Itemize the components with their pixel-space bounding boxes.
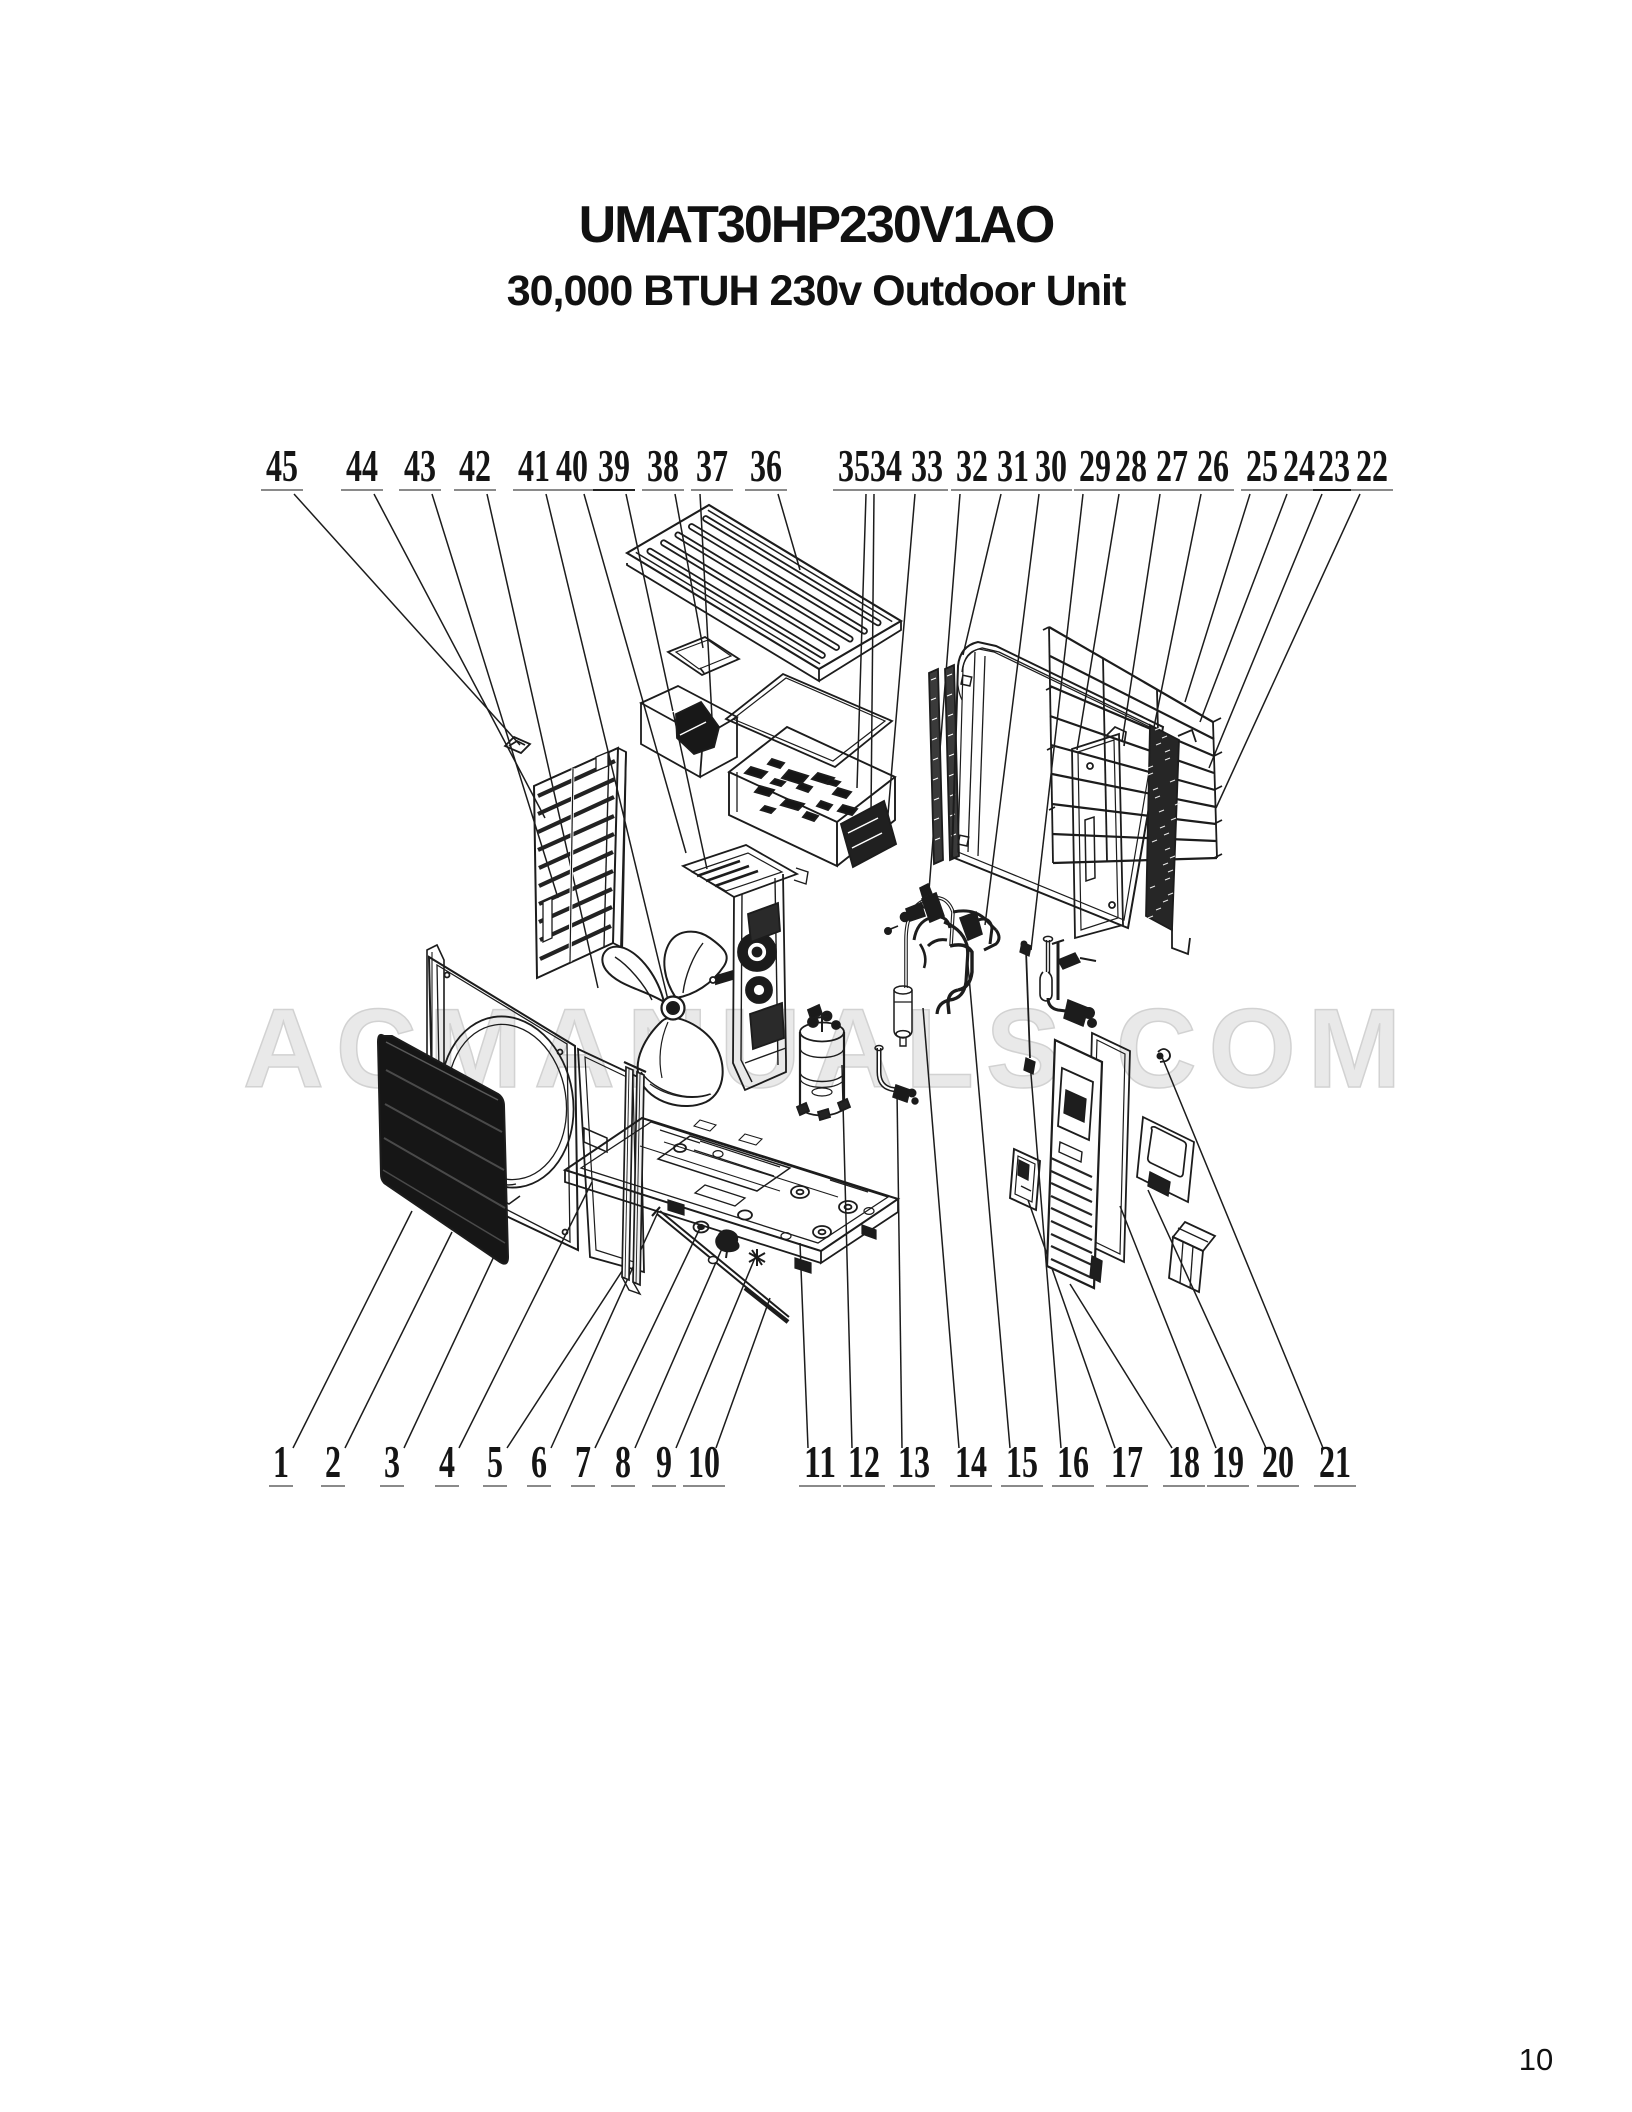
svg-text:41: 41 <box>518 440 550 491</box>
svg-text:28: 28 <box>1115 440 1147 491</box>
svg-text:21: 21 <box>1319 1436 1351 1487</box>
svg-text:33: 33 <box>911 440 943 491</box>
svg-text:32: 32 <box>956 440 988 491</box>
svg-text:23: 23 <box>1318 440 1350 491</box>
svg-text:8: 8 <box>615 1436 631 1487</box>
svg-text:43: 43 <box>404 440 436 491</box>
svg-text:6: 6 <box>531 1436 547 1487</box>
svg-text:1: 1 <box>273 1436 289 1487</box>
svg-text:40: 40 <box>556 440 588 491</box>
svg-text:19: 19 <box>1212 1436 1244 1487</box>
svg-text:4: 4 <box>439 1436 455 1487</box>
svg-text:42: 42 <box>459 440 491 491</box>
svg-text:37: 37 <box>696 440 728 491</box>
svg-text:36: 36 <box>750 440 782 491</box>
svg-text:34: 34 <box>870 440 902 491</box>
svg-text:15: 15 <box>1006 1436 1038 1487</box>
svg-text:31: 31 <box>997 440 1029 491</box>
svg-text:24: 24 <box>1283 440 1315 491</box>
svg-text:30: 30 <box>1035 440 1067 491</box>
svg-text:35: 35 <box>838 440 870 491</box>
svg-text:22: 22 <box>1356 440 1388 491</box>
svg-text:14: 14 <box>955 1436 987 1487</box>
svg-text:UMAT30HP230V1AO: UMAT30HP230V1AO <box>579 196 1054 254</box>
svg-text:10: 10 <box>1519 2042 1553 2077</box>
svg-text:5: 5 <box>487 1436 503 1487</box>
svg-text:7: 7 <box>575 1436 591 1487</box>
svg-text:12: 12 <box>848 1436 880 1487</box>
svg-text:27: 27 <box>1156 440 1188 491</box>
svg-text:44: 44 <box>346 440 378 491</box>
svg-text:18: 18 <box>1168 1436 1200 1487</box>
svg-text:11: 11 <box>804 1436 836 1487</box>
svg-text:13: 13 <box>898 1436 930 1487</box>
svg-text:9: 9 <box>656 1436 672 1487</box>
svg-text:26: 26 <box>1197 440 1229 491</box>
svg-text:45: 45 <box>266 440 298 491</box>
svg-text:29: 29 <box>1079 440 1111 491</box>
svg-text:25: 25 <box>1246 440 1278 491</box>
svg-text:20: 20 <box>1262 1436 1294 1487</box>
svg-text:38: 38 <box>647 440 679 491</box>
svg-text:39: 39 <box>598 440 630 491</box>
svg-text:17: 17 <box>1111 1436 1143 1487</box>
svg-text:30,000 BTUH 230v Outdoor Unit: 30,000 BTUH 230v Outdoor Unit <box>507 267 1126 315</box>
svg-text:10: 10 <box>688 1436 720 1487</box>
svg-text:16: 16 <box>1057 1436 1089 1487</box>
svg-text:2: 2 <box>325 1436 341 1487</box>
svg-text:3: 3 <box>384 1436 400 1487</box>
